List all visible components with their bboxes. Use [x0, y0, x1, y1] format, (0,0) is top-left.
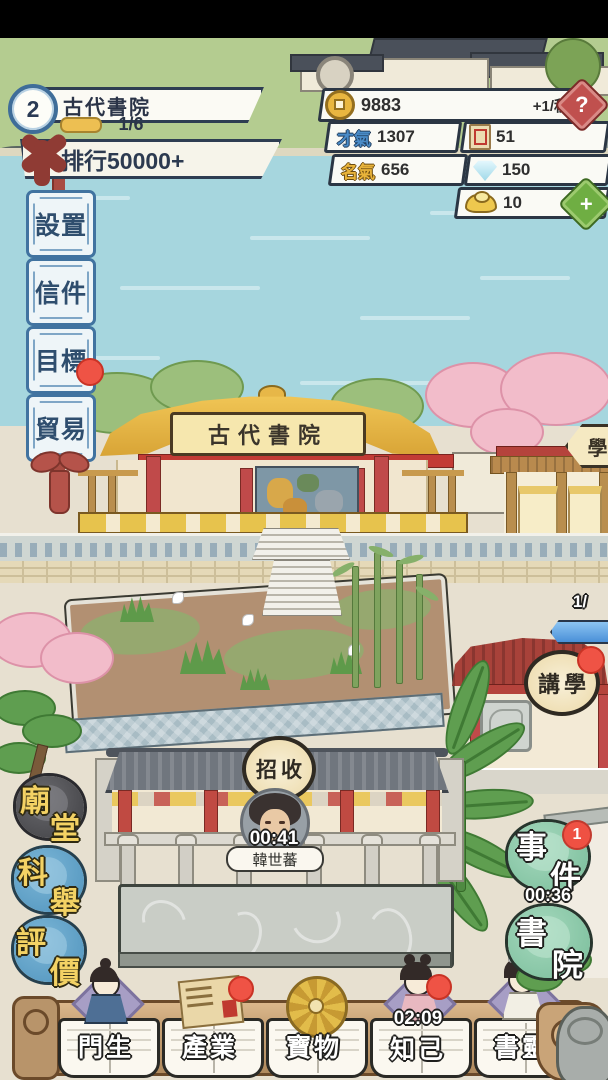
- rating-button[interactable]: 評 價: [14, 918, 84, 982]
- tree: [545, 38, 601, 94]
- annex-window: [568, 486, 602, 538]
- talent-bar: 才氣 1307: [324, 121, 462, 153]
- talent-label: 才氣: [337, 125, 371, 150]
- main-hall-plaque-text: 古代書院: [208, 418, 328, 450]
- annex-window: [518, 486, 558, 538]
- upper-stairs: [252, 528, 350, 560]
- railing-post: [422, 840, 438, 886]
- coin-amount: 9883: [361, 95, 401, 116]
- status-bar: [0, 0, 608, 38]
- annex-sign-text: 學: [588, 432, 608, 461]
- bamboo-stalk: [352, 566, 359, 688]
- talent-amount: 1307: [377, 127, 415, 147]
- menu-item-mail[interactable]: 信件: [26, 258, 96, 326]
- white-flower: [242, 614, 254, 626]
- gem-icon: [473, 159, 497, 181]
- ticket-amount: 51: [496, 127, 515, 147]
- wall-foundation: [118, 952, 452, 968]
- menu-item-trade[interactable]: 貿易: [26, 394, 96, 462]
- recruit-sign-text: 招: [256, 754, 277, 784]
- ticket-icon: [469, 124, 491, 150]
- main-hall-plaque: 古代書院: [170, 412, 366, 456]
- coin-bar: 9883 +1/秒: [318, 88, 585, 122]
- bottom-item-label: 寶物: [266, 1028, 362, 1064]
- lady-icon: [420, 954, 431, 965]
- fame-amount: 656: [381, 160, 409, 180]
- lower-stairs: [262, 560, 342, 616]
- button-char: 事: [516, 822, 547, 867]
- npc-name: 韓世蕃: [252, 849, 297, 870]
- menu-item-settings[interactable]: 設置: [26, 190, 96, 258]
- plus-icon: +: [580, 191, 593, 217]
- pillar: [598, 694, 608, 772]
- notification-dot: [577, 646, 605, 674]
- question-icon: ?: [575, 92, 588, 118]
- capacity-progress-bar: [550, 620, 608, 644]
- rank-text: 排行50000+: [61, 142, 184, 176]
- bottom-item-label: 知己: [370, 1030, 466, 1066]
- scroll-end-left: [12, 996, 60, 1080]
- fame-bar: 名氣 656: [328, 154, 468, 186]
- button-char: 院: [552, 940, 583, 985]
- npc-timer: 00:41: [222, 828, 326, 850]
- railing-post: [120, 840, 136, 886]
- confidant-timer: 02:09: [370, 1008, 466, 1030]
- temple-court-button[interactable]: 廟 堂: [16, 776, 84, 838]
- menu-label: 設置: [35, 206, 87, 242]
- stone-lion: [556, 1006, 608, 1080]
- tassel-icon: [49, 470, 70, 514]
- notification-dot: [76, 358, 104, 386]
- badge-count: 1: [573, 826, 582, 844]
- events-timer: 00:36: [504, 885, 592, 906]
- notification-dot: [426, 974, 452, 1000]
- bottom-item-label: 產業: [162, 1028, 258, 1064]
- xp-progress-text: 1/6: [96, 114, 166, 135]
- button-char: 廟: [20, 776, 50, 820]
- button-char: 科: [18, 848, 48, 892]
- bamboo-stalk: [396, 560, 403, 684]
- fame-label: 名氣: [341, 158, 375, 183]
- game-screen: 學 古代書院: [0, 0, 608, 1080]
- disciple-icon: [100, 958, 111, 969]
- imperial-exam-button[interactable]: 科 舉: [14, 848, 84, 912]
- ingot-amount: 10: [503, 193, 522, 213]
- academy-button[interactable]: 書 院: [508, 906, 590, 978]
- button-char: 舉: [50, 878, 80, 922]
- bamboo-stalk: [374, 552, 381, 688]
- recruit-sign-text: 收: [281, 754, 302, 784]
- gold-ingot-icon: [465, 194, 497, 213]
- button-char: 書: [516, 908, 547, 953]
- button-char: 堂: [50, 804, 80, 848]
- level-badge[interactable]: 2: [8, 84, 58, 134]
- capacity-text: 1/: [552, 592, 608, 612]
- lecture-sign-text: 講: [538, 667, 560, 699]
- bottom-item-label: 門生: [58, 1028, 154, 1064]
- menu-label: 貿易: [35, 410, 87, 446]
- eave-beam: [78, 470, 138, 476]
- level-number: 2: [27, 96, 40, 123]
- button-char: 評: [16, 918, 46, 962]
- events-badge: 1: [562, 820, 592, 850]
- button-char: 價: [50, 948, 80, 992]
- lady-icon: [404, 954, 415, 965]
- menu-label: 信件: [35, 274, 87, 310]
- railing-post: [178, 840, 194, 886]
- coin-icon: [325, 90, 355, 120]
- blossom-tree: [40, 632, 114, 684]
- gem-amount: 150: [502, 160, 530, 180]
- notification-dot: [228, 976, 254, 1002]
- white-flower: [172, 592, 184, 604]
- ribbon-icon: [34, 140, 50, 186]
- railing-post: [364, 840, 380, 886]
- eave-beam: [402, 470, 464, 476]
